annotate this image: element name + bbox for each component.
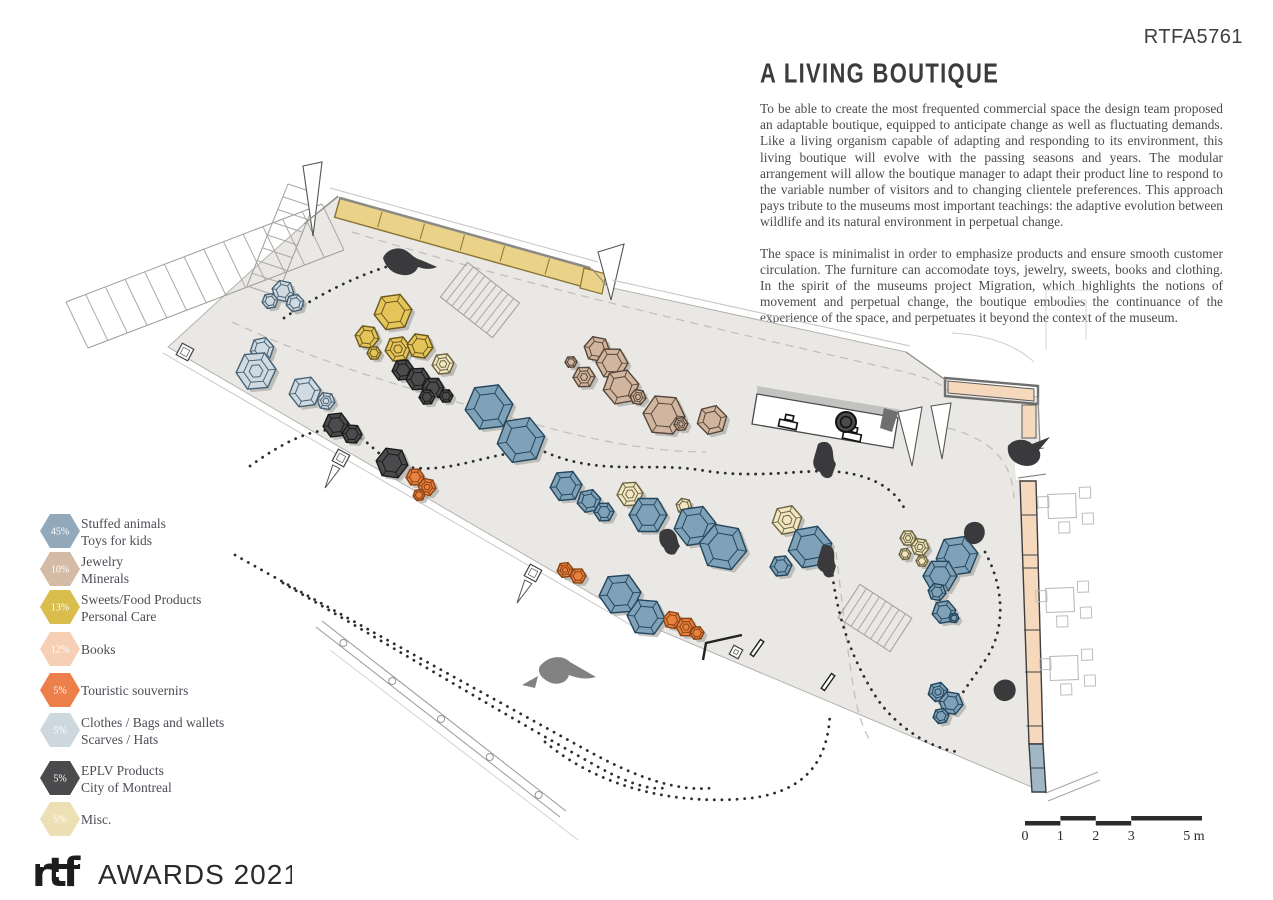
- presentation-board: RTFA5761 A LIVING BOUTIQUE To be able to…: [0, 0, 1273, 900]
- cafe-table-group: [1037, 487, 1094, 534]
- legend-label: Stuffed animalsToys for kids: [81, 515, 166, 549]
- railing-post: [389, 678, 396, 685]
- scribble-ball: [836, 412, 856, 432]
- legend-label: Touristic souvernirs: [81, 682, 188, 699]
- legend-label: JewelryMinerals: [81, 553, 129, 587]
- rtf-awards-logo: rtf AWARDS 2021: [32, 850, 292, 896]
- context-arc: [952, 333, 1034, 362]
- legend-label: EPLV ProductsCity of Montreal: [81, 762, 172, 796]
- scale-label: 0: [1022, 829, 1029, 844]
- column-marker: [511, 564, 541, 606]
- scale-label: 3: [1128, 829, 1135, 844]
- logo-notch-1: [40, 862, 44, 867]
- legend-percentage: 5%: [53, 815, 66, 826]
- legend-label: Misc.: [81, 811, 111, 828]
- cafe-table-group: [1039, 649, 1096, 696]
- legend-percentage: 5%: [53, 726, 66, 737]
- legend-label: Books: [81, 641, 116, 658]
- legend-hexagon-icon: 5%: [39, 759, 83, 797]
- legend-hexagon-icon: 5%: [39, 671, 83, 709]
- column-marker: [319, 449, 349, 491]
- scale-label: 5 m: [1183, 829, 1205, 844]
- legend-percentage: 5%: [53, 686, 66, 697]
- shelf-strip-corner: [1022, 405, 1036, 438]
- scale-bar-segment: [1060, 816, 1095, 821]
- logo-notch-2: [56, 872, 60, 877]
- legend-hexagon-icon: 10%: [39, 550, 83, 588]
- scale-bar-segment: [1025, 821, 1060, 826]
- legend-percentage: 10%: [51, 565, 69, 576]
- railing-post: [486, 754, 493, 761]
- legend-hexagon-icon: 12%: [39, 630, 83, 668]
- legend-percentage: 45%: [51, 527, 69, 538]
- legend-percentage: 5%: [53, 774, 66, 785]
- scale-label: 1: [1057, 829, 1064, 844]
- scale-label: 2: [1092, 829, 1099, 844]
- logo-notch-3: [74, 860, 78, 865]
- legend-hexagon-icon: 5%: [39, 800, 83, 838]
- scale-bar-segment: [1096, 821, 1131, 826]
- legend-label: Clothes / Bags and walletsScarves / Hats: [81, 714, 224, 748]
- cafe-table-group: [1035, 581, 1092, 628]
- scale-bar: 01235 m: [1022, 816, 1205, 844]
- column-nib: [322, 465, 340, 490]
- column-nib: [514, 580, 532, 605]
- wall-line: [1046, 772, 1100, 801]
- legend: 45%Stuffed animalsToys for kids10%Jewelr…: [0, 0, 320, 900]
- legend-hexagon-icon: 5%: [39, 711, 83, 749]
- legend-label: Sweets/Food ProductsPersonal Care: [81, 591, 201, 625]
- awards-text: AWARDS 2021: [98, 859, 292, 890]
- legend-hexagon-icon: 45%: [39, 512, 83, 550]
- silhouette: [522, 657, 596, 688]
- railing-post: [535, 792, 542, 799]
- context-outline: [1046, 290, 1092, 350]
- legend-percentage: 12%: [51, 645, 69, 656]
- railing-post: [438, 716, 445, 723]
- legend-hexagon-icon: 13%: [39, 588, 83, 626]
- scale-bar-segment: [1131, 816, 1202, 821]
- railing-post: [340, 640, 347, 647]
- legend-percentage: 13%: [51, 603, 69, 614]
